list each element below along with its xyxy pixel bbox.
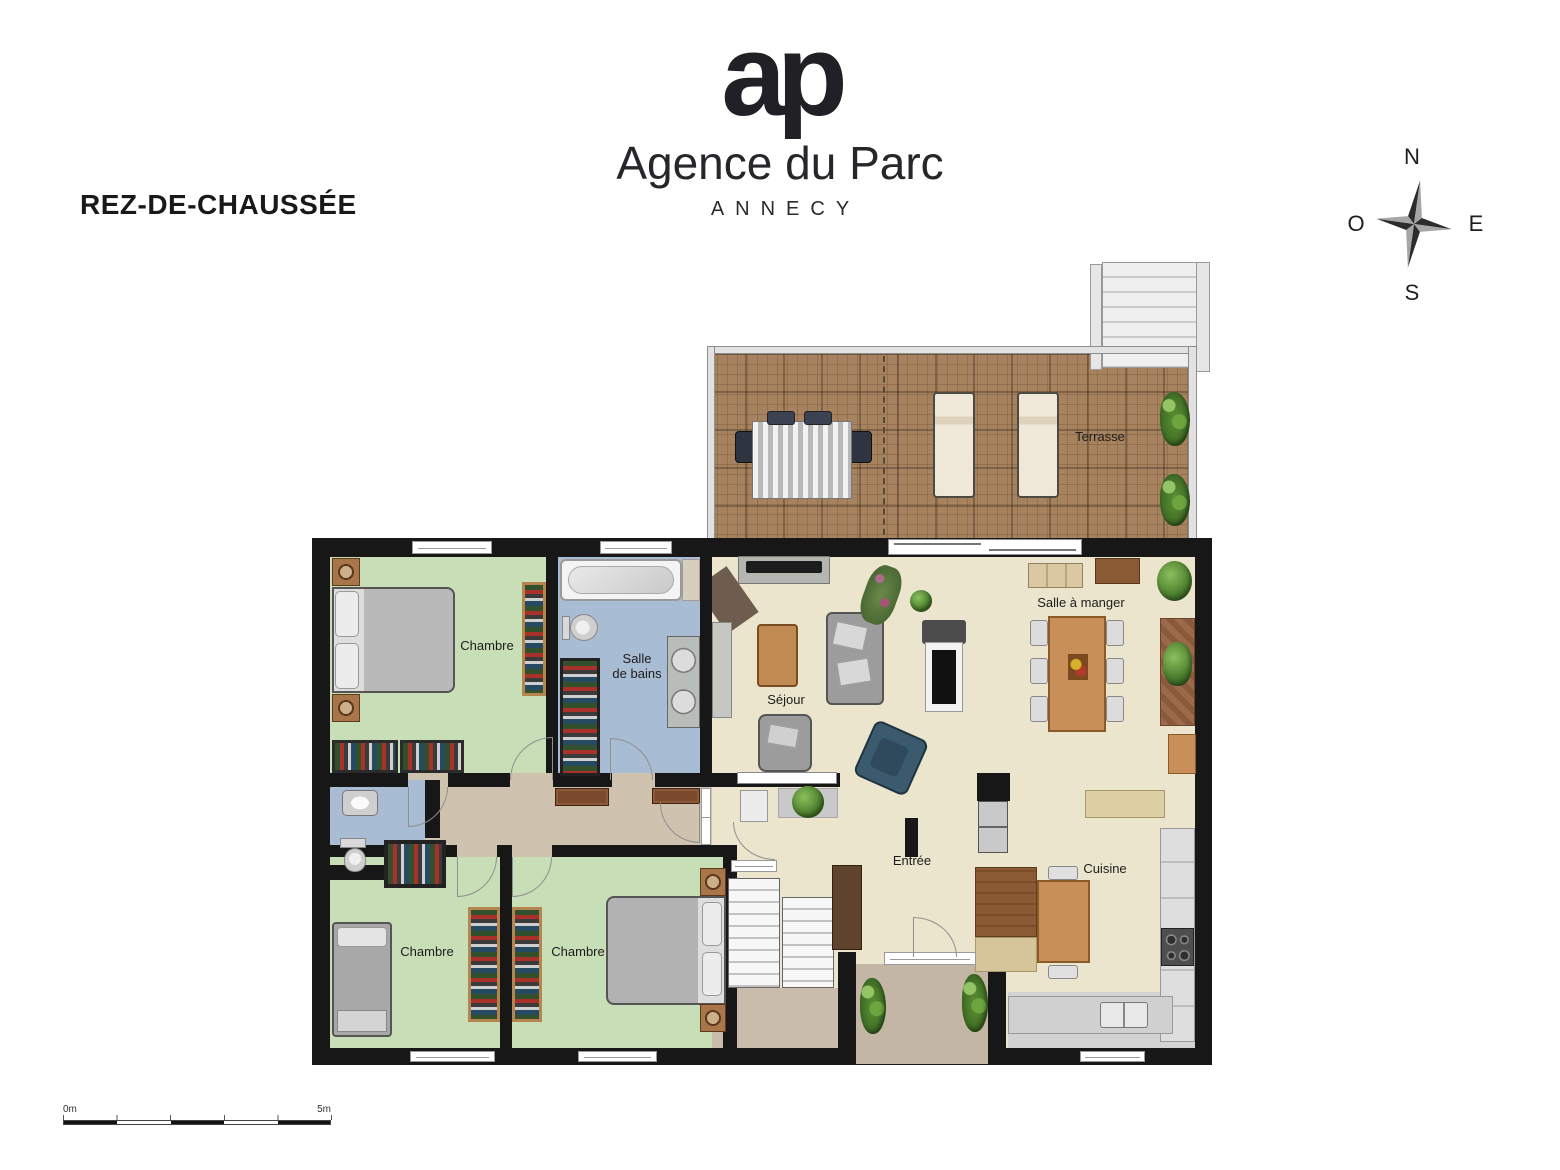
bedroom-north-label: Chambre [442, 639, 532, 654]
compass-north-label: N [1404, 144, 1420, 169]
nightstand [332, 558, 360, 586]
terrace-label: Terrasse [1055, 430, 1145, 445]
wall-hall-north [330, 773, 408, 787]
bathroom-shelf [682, 559, 700, 601]
living-room-label: Séjour [741, 693, 831, 708]
entry-cabinet-white [740, 790, 768, 822]
wardrobe [468, 907, 500, 1022]
compass-east-label: E [1469, 211, 1484, 236]
sofa-cushion [832, 621, 868, 651]
dining-chair [1106, 620, 1124, 646]
armchair-cushion [766, 724, 799, 749]
sun-lounger [933, 392, 975, 498]
nightstand [332, 694, 360, 722]
agency-logo: ap Agence du Parc ANNECY [540, 26, 1020, 221]
plant [1157, 561, 1192, 601]
toilet-bowl [570, 614, 598, 641]
kitchen-island-base [975, 937, 1037, 972]
wall-left [312, 538, 330, 1065]
tv [746, 561, 822, 573]
scale-end-label: 5m [317, 1104, 331, 1115]
bathroom-label-line2: de bains [612, 666, 661, 681]
compass-rose-icon: N E S O [1348, 128, 1488, 308]
pillow [335, 643, 359, 689]
terrace-wall-left [707, 346, 715, 545]
double-sink-vanity [667, 636, 700, 728]
wall-bathroom-living [700, 557, 712, 773]
kitchen-sink [1100, 1002, 1148, 1028]
scale-segments [63, 1120, 331, 1125]
page-title: REZ-DE-CHAUSSÉE [80, 189, 357, 221]
closet [400, 740, 464, 773]
bathtub-basin [568, 566, 674, 594]
terrace-plant [1160, 392, 1190, 446]
wall-hall-north [448, 773, 510, 787]
wc-toilet-bowl [344, 848, 366, 872]
dining-chair [1030, 620, 1048, 646]
sliding-glass-door [888, 539, 1082, 555]
radiator [737, 772, 837, 784]
nightstand [700, 868, 726, 896]
wall-between-bedrooms [500, 857, 512, 1048]
kitchen-counter-bottom [1008, 996, 1173, 1034]
window [600, 541, 672, 554]
dining-sideboard [1028, 563, 1083, 588]
wall-entry-kitchen [905, 818, 918, 857]
wall-right [1195, 538, 1212, 1065]
floor-plan: Terrasse [312, 262, 1212, 1072]
terrace-chair [804, 411, 832, 425]
stairs-door-sill [731, 860, 777, 872]
armchair [758, 714, 812, 772]
kitchen-island-wood [975, 867, 1037, 937]
scale-start-label: 0m [63, 1104, 77, 1115]
stove-fireplace [925, 642, 963, 712]
dining-chair [1106, 696, 1124, 722]
porch-wall-left [838, 952, 856, 1064]
dining-chair [1030, 658, 1048, 684]
compass-south-label: S [1405, 280, 1420, 305]
toilet [562, 616, 570, 640]
dark-cabinet [1095, 558, 1140, 584]
terrace-chair [767, 411, 795, 425]
sun-lounger [1017, 392, 1059, 498]
coffee-table [757, 624, 798, 687]
window [578, 1051, 657, 1062]
compass-west-label: O [1348, 211, 1365, 236]
bedroom-west-label: Chambre [382, 945, 472, 960]
dining-room-label: Salle à manger [1024, 596, 1138, 611]
table-centerpiece [1068, 654, 1088, 680]
sofa [826, 612, 884, 705]
plant [1163, 642, 1192, 686]
terrace-divider-line [883, 356, 885, 545]
wc-toilet-tank [340, 838, 366, 848]
wall-bedrooms-top [552, 845, 724, 857]
plant [792, 786, 824, 818]
bathroom-label: Salle de bains [594, 652, 680, 682]
entry-label: Entrée [867, 854, 957, 869]
window [412, 541, 492, 554]
pillow [335, 591, 359, 637]
bathroom-label-line1: Salle [623, 651, 652, 666]
hall-door-jamb [701, 788, 711, 845]
wall-bedrooms-top [497, 845, 512, 857]
dining-chair [1030, 696, 1048, 722]
dining-table [1048, 616, 1106, 732]
pillow [702, 902, 722, 946]
small-cabinet [1168, 734, 1196, 774]
sideboard [712, 622, 732, 718]
kitchen-chair [1048, 965, 1078, 979]
interior-stairs-run1 [728, 878, 780, 988]
scale-bar: 0m 5m [63, 1104, 331, 1134]
kitchen-table [1037, 880, 1090, 963]
kitchen-top-cabinet [1085, 790, 1165, 818]
logo-monogram-icon: ap [540, 26, 1020, 130]
plant [910, 590, 932, 612]
window [410, 1051, 495, 1062]
terrace-wall-top [707, 346, 1195, 354]
kitchen-label: Cuisine [1060, 862, 1150, 877]
stove-fireplace-glass [932, 650, 956, 704]
hall-cabinet [555, 788, 609, 806]
agency-name: Agence du Parc [540, 136, 1020, 190]
cooktop [1161, 928, 1194, 966]
porch-plant [860, 978, 886, 1034]
blue-armchair-seat [869, 736, 909, 777]
exterior-stairs-left-rail [1090, 264, 1102, 370]
bathtub [560, 559, 682, 601]
stove-fireplace-top [922, 620, 966, 644]
porch-plant [962, 974, 988, 1032]
exterior-stairs-right-rail [1196, 262, 1210, 372]
floor-plan-page: REZ-DE-CHAUSSÉE ap Agence du Parc ANNECY… [0, 0, 1560, 1170]
nightstand [700, 1004, 726, 1032]
terrace-table-cover [752, 421, 852, 499]
entry-console [832, 865, 862, 950]
wc-sink [342, 790, 378, 816]
fridge-column [978, 801, 1008, 853]
hall-cabinet [652, 788, 700, 804]
agency-city: ANNECY [540, 198, 1020, 221]
terrace-plant [1160, 474, 1190, 526]
sofa-cushion [836, 658, 871, 687]
wardrobe [512, 907, 542, 1022]
interior-stairs-run2 [782, 897, 834, 988]
pillow [337, 927, 387, 947]
pillow [702, 952, 722, 996]
bed-footboard [337, 1010, 387, 1032]
wall-living-kitchen-block [977, 773, 1010, 801]
dining-chair [1106, 658, 1124, 684]
bedroom-south-label: Chambre [533, 945, 623, 960]
wc-closet [384, 840, 446, 888]
closet [332, 740, 398, 773]
terrace-wall-right [1188, 346, 1197, 545]
window [1080, 1051, 1145, 1062]
